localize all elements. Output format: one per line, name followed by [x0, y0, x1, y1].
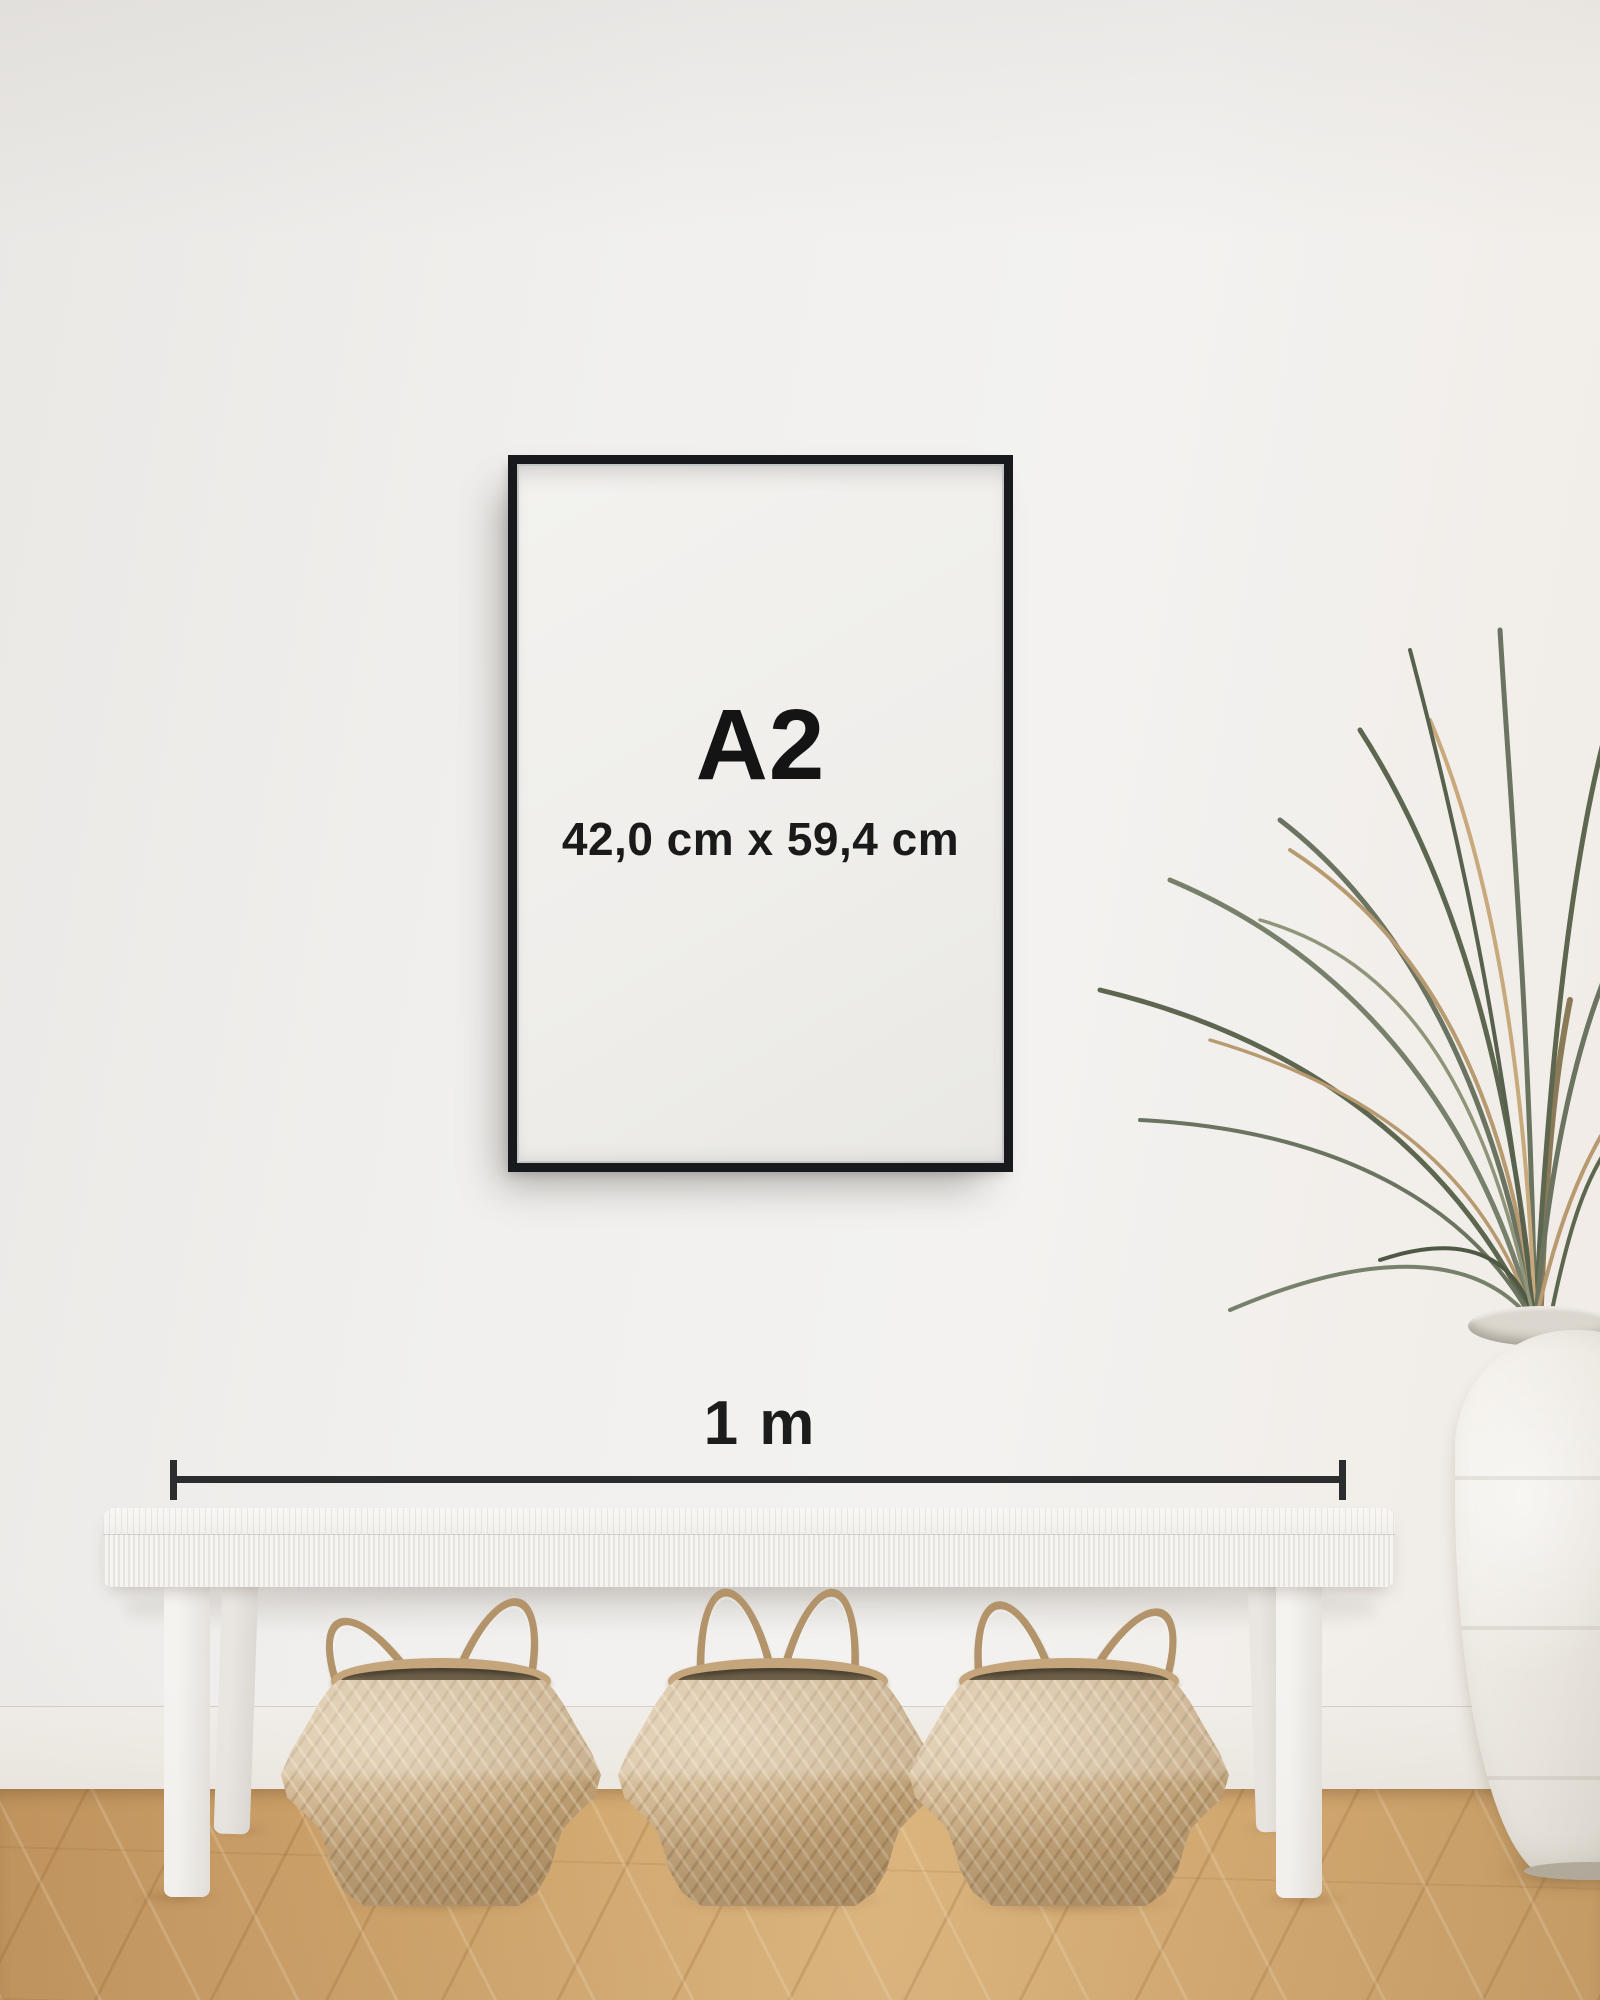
- scale-label: 1 m: [174, 1392, 1346, 1456]
- bench-seat-front-weave: [103, 1534, 1395, 1587]
- bench-leg-front-left: [164, 1584, 210, 1897]
- picture-frame: A2 42,0 cm x 59,4 cm: [508, 455, 1013, 1172]
- bench-seat: [103, 1508, 1395, 1587]
- poster-dimensions-label: 42,0 cm x 59,4 cm: [562, 812, 959, 866]
- basket-body: [281, 1680, 601, 1906]
- basket-body: [909, 1680, 1229, 1906]
- palm-plant-leaves: [1030, 400, 1600, 1440]
- poster-size-label: A2: [562, 693, 959, 798]
- basket-3: [909, 1600, 1229, 1912]
- poster-text-block: A2 42,0 cm x 59,4 cm: [562, 693, 959, 866]
- basket-body: [618, 1680, 938, 1906]
- bench-leg-front-right: [1276, 1584, 1322, 1898]
- mockup-scene: A2 42,0 cm x 59,4 cm 1 m: [0, 0, 1600, 2000]
- scale-tick-right: [1339, 1460, 1346, 1500]
- scale-line: [174, 1476, 1346, 1483]
- basket-1: [281, 1600, 601, 1912]
- bench-seat-top-weave: [103, 1508, 1395, 1534]
- basket-2: [618, 1600, 938, 1912]
- scale-tick-left: [170, 1460, 177, 1500]
- poster: A2 42,0 cm x 59,4 cm: [519, 466, 1002, 1161]
